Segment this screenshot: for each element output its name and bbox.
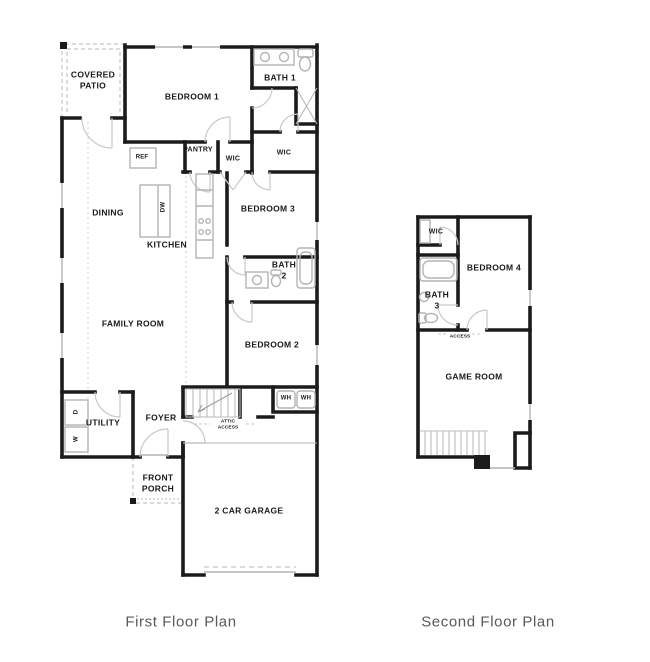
patio-post [60, 42, 67, 49]
label-family-room: FAMILY ROOM [102, 319, 164, 330]
first-floor-walls [62, 45, 317, 575]
first-floor-plan-drawing [60, 42, 317, 575]
label-dryer: D [73, 410, 81, 415]
label-bath3: BATH 3 [425, 289, 449, 310]
washer-dryer [65, 400, 88, 452]
second-floor-walls [418, 217, 530, 468]
label-wic-2: WIC [429, 229, 444, 238]
label-ref: REF [136, 154, 149, 162]
area-separator-dashes [88, 122, 186, 455]
label-utility: UTILITY [86, 418, 120, 429]
floor-plan-page: COVERED PATIO BEDROOM 1 BATH 1 REF PANTR… [0, 0, 650, 662]
label-wh-left: WH [281, 395, 291, 403]
second-floor-caption: Second Floor Plan [421, 614, 555, 631]
first-floor-stairs [186, 389, 240, 417]
label-bedroom1: BEDROOM 1 [165, 92, 219, 103]
label-attic-access-1: ATTIC ACCESS [218, 419, 239, 430]
label-dining: DINING [92, 208, 124, 219]
label-bedroom2: BEDROOM 2 [245, 340, 299, 351]
label-attic-access-2: ATTIC ACCESS [450, 328, 471, 339]
label-pantry: PANTRY [183, 147, 213, 156]
label-wic-hall: WIC [226, 156, 241, 165]
label-washer: W [73, 436, 81, 442]
first-floor-caption: First Floor Plan [125, 614, 236, 631]
label-bath2: BATH 2 [272, 259, 296, 280]
label-garage: 2 CAR GARAGE [215, 506, 284, 517]
label-kitchen: KITCHEN [147, 240, 187, 251]
label-foyer: FOYER [146, 413, 177, 424]
label-front-porch: FRONT PORCH [142, 472, 174, 493]
first-floor-fixtures [65, 49, 317, 572]
floor-plan-drawing [0, 0, 650, 662]
label-game-room: GAME ROOM [445, 372, 502, 383]
label-bath1: BATH 1 [264, 73, 296, 84]
stair-landing-post [474, 455, 490, 469]
label-wic-bath1: WIC [277, 150, 292, 159]
label-wh-right: WH [301, 395, 311, 403]
second-floor-stairs [420, 431, 488, 455]
porch-post [130, 498, 136, 504]
label-covered-patio: COVERED PATIO [71, 69, 115, 90]
label-bedroom3: BEDROOM 3 [241, 204, 295, 215]
second-floor-plan-drawing [418, 217, 530, 469]
label-bedroom4: BEDROOM 4 [467, 263, 521, 274]
label-dishwasher: DW [160, 202, 168, 212]
